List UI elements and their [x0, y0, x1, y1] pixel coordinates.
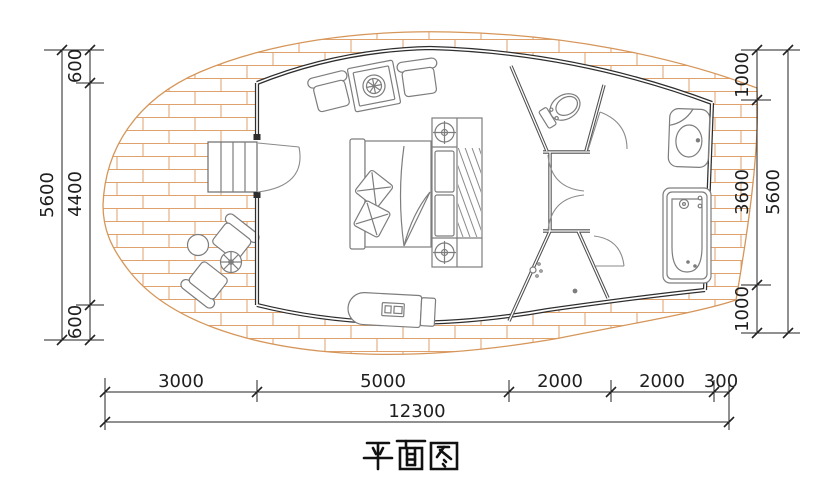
dim-right-3600: 3600	[732, 169, 753, 215]
floor-plan-drawing: 5600 600 4400 600 1000 3600 1000 5600	[0, 0, 837, 496]
door-jamb-bottom	[254, 192, 261, 198]
dim-right-1000-top: 1000	[732, 52, 753, 98]
title-glyph-ping	[364, 443, 392, 469]
outdoor-round-table	[221, 252, 242, 273]
entry-steps	[208, 142, 257, 192]
bathtub	[663, 188, 711, 283]
vanity-sink	[668, 108, 710, 167]
dimension-right: 1000 3600 1000 5600	[732, 45, 800, 338]
hanging-clothes	[458, 148, 481, 237]
floor-plan-page: 5600 600 4400 600 1000 3600 1000 5600	[0, 0, 837, 496]
storage-bench	[347, 292, 436, 329]
double-bed	[350, 139, 431, 249]
dim-bottom-300: 300	[704, 371, 738, 392]
dimension-bottom: 3000 5000 2000 2000 300 12300	[100, 371, 738, 430]
dim-bottom-5000: 5000	[360, 371, 406, 392]
door-jamb-top	[254, 134, 261, 140]
dim-bottom-2000-a: 2000	[537, 371, 583, 392]
dim-left-overall: 5600	[37, 172, 58, 218]
page-title	[364, 441, 457, 469]
dim-bottom-overall: 12300	[388, 401, 445, 422]
dim-left-4400: 4400	[65, 171, 86, 217]
dim-left-600-top: 600	[65, 49, 86, 83]
title-glyph-mian	[397, 441, 425, 469]
title-glyph-tu	[431, 443, 457, 469]
outdoor-stool	[188, 235, 209, 256]
wardrobe-door-panel	[435, 151, 454, 192]
tea-table	[347, 60, 401, 112]
dim-right-1000-bottom: 1000	[732, 286, 753, 332]
dim-bottom-2000-b: 2000	[639, 371, 685, 392]
wardrobe	[432, 118, 482, 267]
wardrobe-door-panel	[435, 195, 454, 236]
floor-drain	[573, 289, 577, 293]
dim-left-600-bottom: 600	[65, 305, 86, 339]
dim-right-overall: 5600	[763, 169, 784, 215]
dim-bottom-3000: 3000	[158, 371, 204, 392]
dimension-left: 5600 600 4400 600	[37, 45, 104, 345]
